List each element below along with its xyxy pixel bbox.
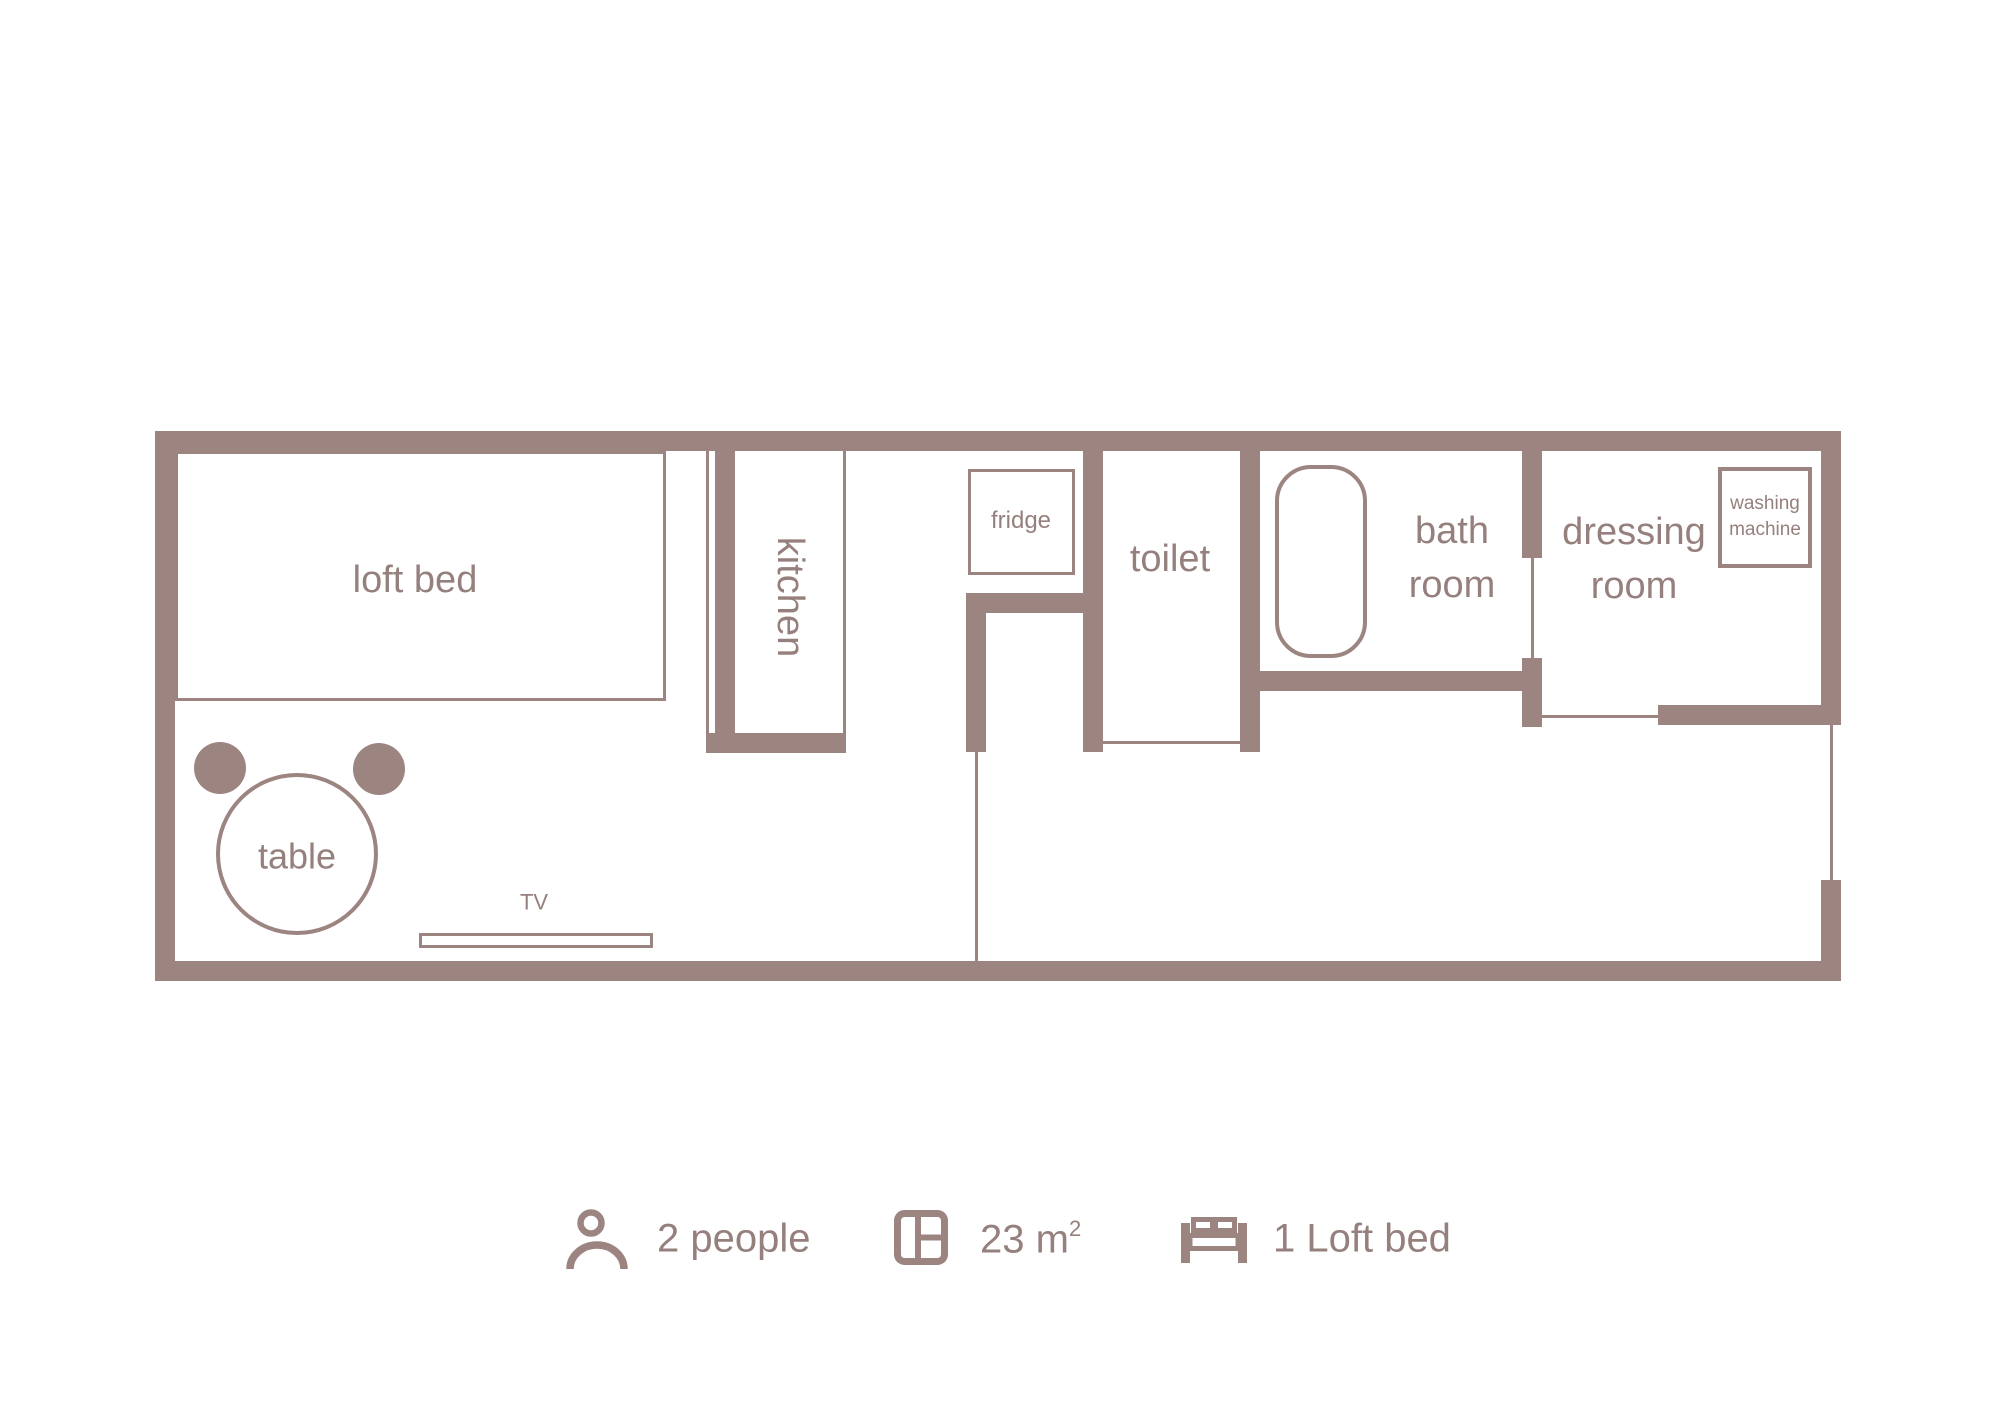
wall-right-upper xyxy=(1821,431,1841,725)
bathroom-bottom-wall xyxy=(1260,671,1522,691)
wall-right-lower-stub xyxy=(1821,880,1841,981)
room-label-kitchen: kitchen xyxy=(762,537,816,657)
label-table: table xyxy=(258,830,336,881)
legend-occupancy-label: 2 people xyxy=(657,1217,810,1262)
chair-left xyxy=(194,742,246,794)
dressing-room-line2: room xyxy=(1562,559,1706,613)
room-label-loft-bed: loft bed xyxy=(353,554,478,608)
wall-left xyxy=(155,431,175,981)
kitchen-outline-right xyxy=(843,451,846,735)
tv-box xyxy=(419,933,653,948)
dressing-wall-upper xyxy=(1522,451,1542,558)
dressing-bottom-bar xyxy=(1658,705,1841,725)
kitchen-outline-left xyxy=(706,451,709,753)
hallway-door-line xyxy=(975,752,978,961)
person-icon xyxy=(565,1206,629,1272)
bath-room-line2: room xyxy=(1409,558,1496,612)
toilet-wall-left xyxy=(1083,451,1103,752)
dressing-entry-line xyxy=(1542,715,1658,718)
bed-icon xyxy=(1181,1217,1247,1263)
bathtub xyxy=(1275,465,1367,658)
dressing-wall-stub xyxy=(1522,658,1542,727)
bath-room-line1: bath xyxy=(1409,504,1496,558)
occupancy-text: 2 people xyxy=(657,1217,810,1261)
label-tv: TV xyxy=(520,886,548,917)
toilet-door-line xyxy=(1103,741,1240,744)
loft-bed-text: loft bed xyxy=(353,559,478,601)
washing-machine-line2: machine xyxy=(1729,517,1801,543)
room-label-dressing-room: dressing room xyxy=(1562,505,1706,613)
kitchen-bottom-bar xyxy=(706,733,846,753)
fridge-nook-bar xyxy=(966,593,1083,613)
room-label-bath-room: bath room xyxy=(1409,504,1496,612)
floor-plan-page: loft bed kitchen fridge toilet bath room… xyxy=(0,0,2000,1414)
bed-count-text: 1 Loft bed xyxy=(1273,1217,1451,1261)
area-sup-text: 2 xyxy=(1069,1216,1081,1241)
kitchen-text: kitchen xyxy=(769,537,811,657)
wall-bottom xyxy=(155,961,1841,981)
legend-bed-label: 1 Loft bed xyxy=(1273,1217,1451,1262)
toilet-wall-right xyxy=(1240,451,1260,752)
tv-text: TV xyxy=(520,889,548,914)
washing-machine-line1: washing xyxy=(1729,491,1801,517)
toilet-text: toilet xyxy=(1130,538,1210,580)
window-icon xyxy=(894,1210,948,1265)
kitchen-wall xyxy=(715,451,735,753)
area-value-text: 23 m xyxy=(980,1217,1069,1261)
table-text: table xyxy=(258,835,336,876)
fridge-text: fridge xyxy=(991,507,1051,534)
label-washing-machine: washing machine xyxy=(1729,491,1801,543)
dressing-door-line xyxy=(1531,558,1534,658)
legend-area-label: 23 m2 xyxy=(980,1216,1081,1263)
hallway-wall xyxy=(966,613,986,752)
room-label-toilet: toilet xyxy=(1130,533,1210,587)
window-line-right xyxy=(1830,725,1833,880)
wall-top xyxy=(155,431,1841,451)
chair-right xyxy=(353,743,405,795)
room-label-fridge: fridge xyxy=(991,504,1051,538)
dressing-room-line1: dressing xyxy=(1562,505,1706,559)
